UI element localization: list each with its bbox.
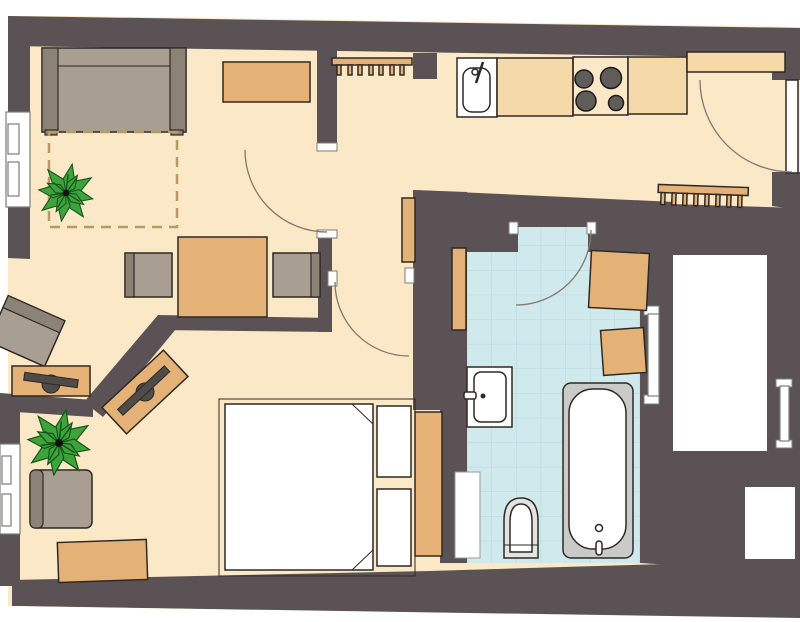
wardrobe — [415, 412, 442, 556]
cabinet-bathroom-2 — [601, 328, 647, 376]
entrance-door-leaf — [786, 80, 798, 173]
wall-left-upper — [8, 16, 30, 112]
burner-icon — [575, 70, 593, 88]
faucet-icon — [472, 69, 478, 75]
window-living-room — [6, 112, 30, 207]
toilet — [504, 498, 538, 558]
burner-icon — [576, 91, 596, 111]
drain-icon — [596, 525, 603, 532]
floor-plan-canvas — [0, 0, 800, 622]
pillow-top — [377, 406, 411, 477]
tall-cabinet-bathroom — [452, 248, 466, 330]
kitchen-sink-unit — [457, 58, 497, 117]
faucet-icon — [464, 392, 476, 399]
wall-right-below-door — [772, 172, 800, 210]
wall-stub-kitchen — [413, 53, 437, 79]
wall-shelf-kitchen — [687, 52, 785, 72]
stairwell-void — [673, 255, 767, 451]
dining-table — [178, 237, 267, 317]
bathtub — [563, 383, 633, 558]
burner-icon — [601, 68, 622, 89]
dining-chair-left — [125, 253, 172, 297]
pillow-bottom — [377, 489, 411, 566]
light-shaft-void — [745, 487, 795, 559]
armchair-bedroom — [30, 470, 92, 528]
wall-left-bottom — [0, 534, 20, 586]
sideboard-bedroom — [57, 539, 147, 582]
duct-niche — [455, 472, 480, 558]
burner-icon — [609, 96, 624, 111]
floor-plan-page — [0, 0, 800, 622]
dining-chair-right — [273, 253, 320, 297]
sideboard-living — [223, 62, 310, 102]
cabinet-bathroom-1 — [589, 251, 650, 311]
washbasin — [464, 367, 512, 427]
tub-faucet-icon — [596, 541, 602, 555]
wall-left-mid — [8, 207, 30, 259]
bathroom-door-threshold-tiles — [518, 227, 588, 254]
tv-lowboard-living — [12, 366, 90, 396]
window-bedroom — [0, 444, 20, 534]
sofa — [42, 48, 186, 135]
slim-cabinet-hall — [402, 198, 415, 262]
countertop-2 — [628, 57, 687, 114]
countertop-1 — [497, 58, 573, 116]
